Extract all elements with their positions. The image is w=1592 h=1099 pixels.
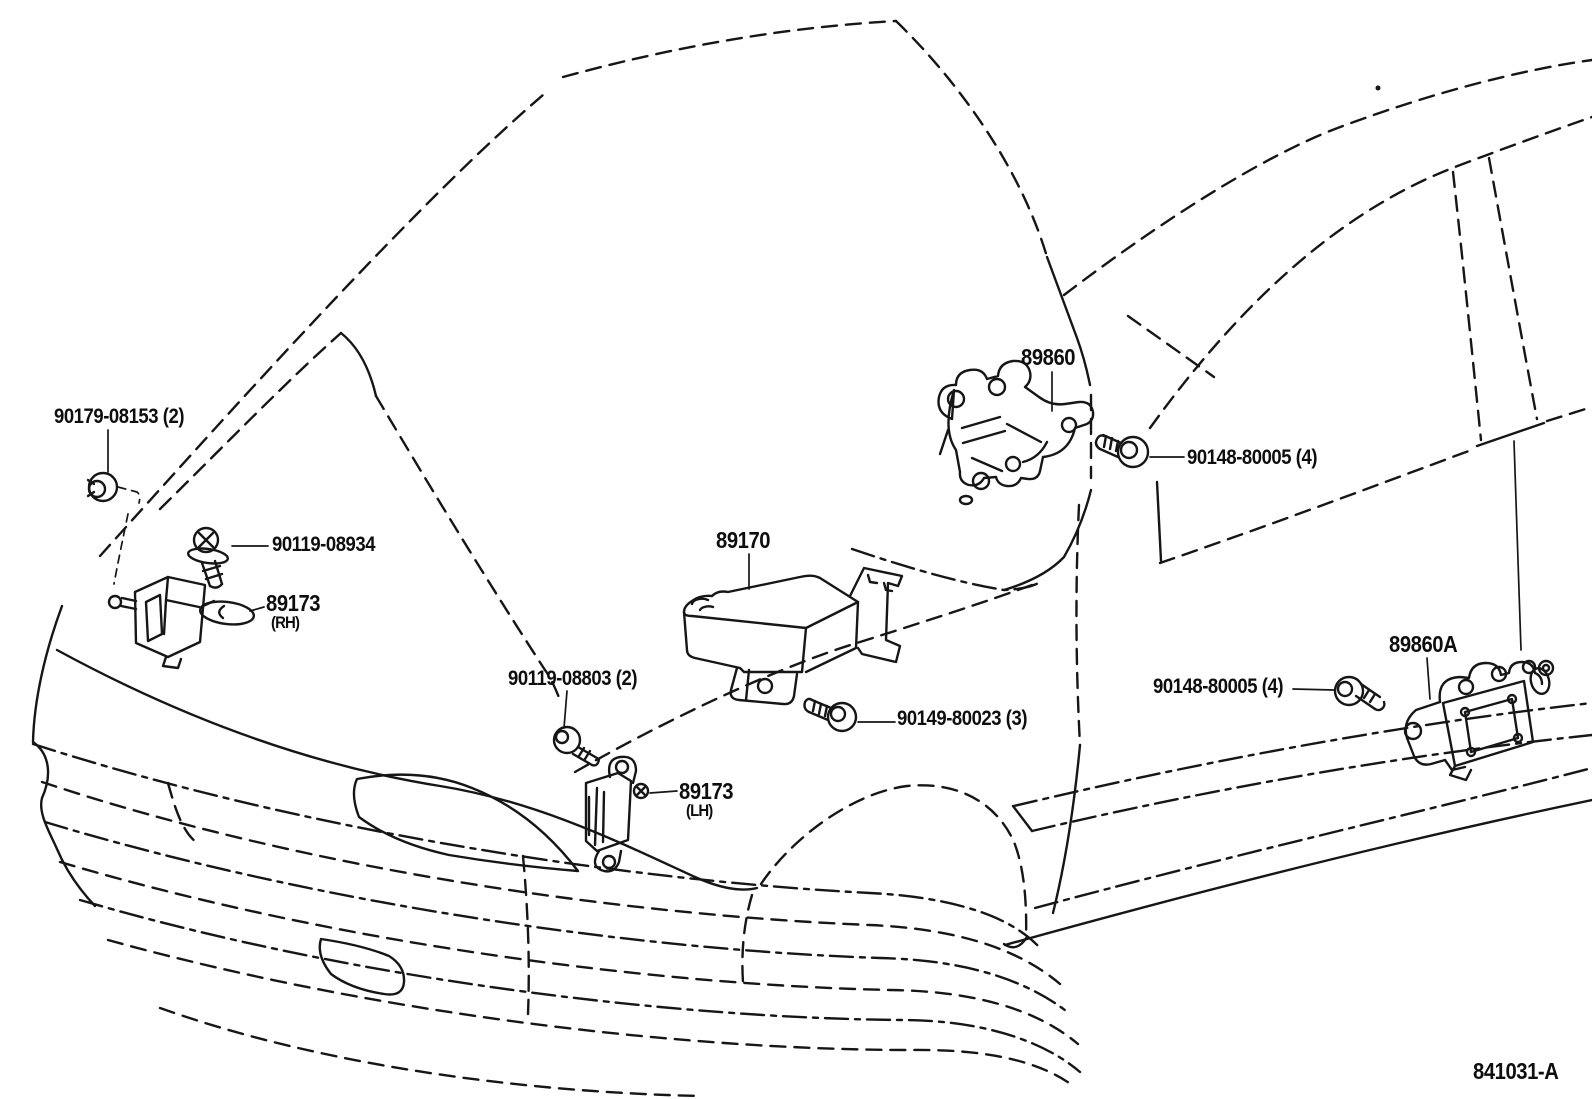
part-90148-80005-screw-lower-drawing: [1335, 677, 1384, 710]
part-89173-rh-sensor-drawing: [109, 577, 255, 668]
part-label-89173-lh: 89173: [679, 780, 733, 803]
mount-location-line: [1514, 441, 1521, 650]
part-label-89860a: 89860A: [1389, 633, 1457, 656]
part-89173-lh-sensor-drawing: [586, 757, 648, 872]
part-label-89860: 89860: [1021, 346, 1075, 369]
part-90179-nut-drawing: [88, 473, 140, 584]
car-body-outline: [33, 21, 1592, 1096]
part-label-89173-rh-side: (RH): [271, 614, 299, 631]
part-label-89173-rh: 89173: [266, 592, 320, 615]
part-label-90148-80005-left: 90148-80005 (4): [1153, 676, 1283, 697]
part-90149-80023-screw-drawing: [805, 699, 857, 731]
airbag-sensor-parts-diagram: 90179-08153 (2) 90119-08934 89173 (RH) 9…: [0, 0, 1592, 1099]
headlamp-outline: [354, 775, 578, 871]
print-dot: [1376, 86, 1381, 91]
figure-code: 841031-A: [1473, 1060, 1558, 1083]
part-label-90148-80005-right: 90148-80005 (4): [1187, 447, 1317, 468]
part-label-90119-08934: 90119-08934: [272, 534, 375, 555]
part-89860a-side-sensor-drawing: [1405, 661, 1553, 780]
part-label-89170: 89170: [716, 529, 770, 552]
part-label-90179-08153: 90179-08153 (2): [54, 406, 184, 427]
parts-diagram-canvas: [0, 0, 1592, 1099]
foglamp-outline: [320, 939, 404, 995]
part-label-90149-80023: 90149-80023 (3): [897, 708, 1027, 729]
part-label-89173-lh-side: (LH): [686, 802, 712, 819]
part-90119-08803-bolt-drawing: [554, 727, 599, 765]
part-89860-bracket-drawing: [939, 361, 1094, 504]
part-label-90119-08803: 90119-08803 (2): [508, 668, 637, 689]
part-90119-08934-bolt-drawing: [187, 528, 229, 588]
part-90148-80005-screw-upper-drawing: [1096, 435, 1148, 467]
part-89170-airbag-sensor-assembly-drawing: [684, 568, 902, 704]
